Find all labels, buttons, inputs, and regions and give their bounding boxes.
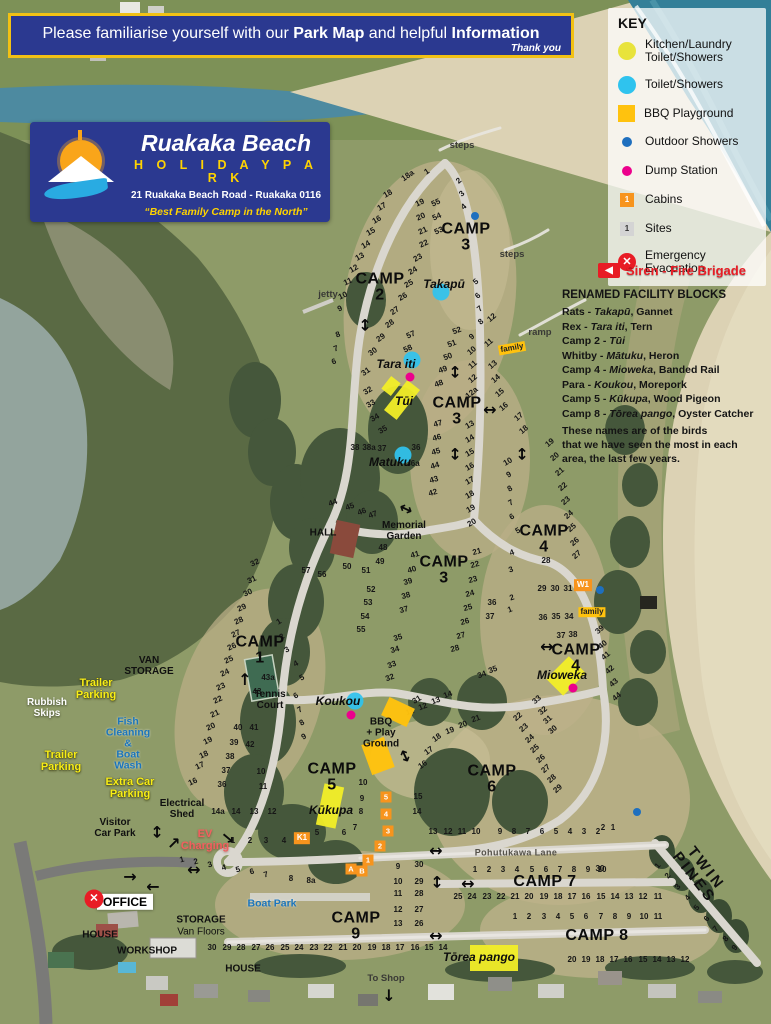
site-number: 37 (486, 613, 495, 621)
site-number: 35 (552, 613, 561, 621)
direction-arrow: ↔ (187, 862, 200, 878)
site-number: 6 (584, 913, 588, 921)
site-number: 36 (412, 444, 421, 452)
renamed-entry: Camp 8 - Tōrea pango, Oyster Catcher (562, 407, 770, 421)
site-number: 28 (384, 318, 396, 330)
site-number: 5 (235, 866, 241, 875)
site-number: 55 (357, 626, 366, 634)
cabin-marker: 5 (381, 792, 392, 803)
site-number: 28 (450, 644, 461, 654)
facility-label: Mioweka (537, 669, 587, 681)
site-number: 18 (554, 893, 563, 901)
cabin-marker: 2 (375, 841, 386, 852)
key-item-label: Kitchen/Laundry Toilet/Showers (645, 38, 732, 65)
key-item-label: Dump Station (645, 164, 718, 177)
site-number: 5 (298, 673, 306, 682)
site-number: 30 (242, 587, 253, 598)
site-number: 24 (219, 667, 230, 678)
site-number: 15 (494, 387, 506, 399)
site-number: 3 (674, 883, 683, 892)
site-number: 8 (506, 484, 514, 493)
site-number: 5 (472, 278, 481, 287)
site-number: 7 (712, 925, 721, 934)
renamed-entry: Camp 5 - Kūkupa, Wood Pigeon (562, 392, 770, 406)
map-label: Pohutukawa Lane (475, 849, 558, 858)
site-number: 25 (463, 603, 474, 613)
outdoor-shower-marker (596, 586, 604, 594)
key-item: Outdoor Showers (618, 133, 760, 151)
site-number: 23 (310, 944, 319, 952)
site-number: 32 (384, 673, 395, 684)
site-number: 7 (296, 705, 304, 714)
renamed-entry: Para - Koukou, Morepork (562, 378, 770, 392)
site-number: 7 (263, 871, 269, 880)
camp-label: CAMP 4 (519, 524, 568, 557)
map-label: OFFICE (97, 894, 153, 910)
map-label: jetty (318, 290, 338, 300)
site-number: 1 (423, 167, 431, 176)
site-number: 4 (292, 659, 300, 668)
site-number: 36 (218, 781, 227, 789)
facility-tag: W1 (574, 579, 592, 591)
site-number: 11 (342, 277, 353, 288)
site-number: 18 (382, 944, 391, 952)
site-number: 9 (360, 795, 364, 803)
site-number: 8 (298, 718, 306, 727)
site-number: 48 (433, 379, 444, 390)
map-label: Memorial Garden (382, 520, 426, 542)
site-number: 15 (425, 944, 434, 952)
site-number: 7 (333, 344, 340, 353)
site-number: 11 (259, 783, 267, 791)
site-number: 22 (470, 560, 481, 570)
site-number: 19 (444, 726, 455, 737)
direction-arrow: ↔ (461, 876, 474, 892)
site-number: 50 (343, 563, 352, 571)
site-number: 36 (539, 614, 548, 622)
site-number: 15 (464, 447, 476, 458)
site-number: 19 (582, 956, 591, 964)
map-label: BBQ + Play Ground (363, 717, 399, 750)
site-number: 21 (209, 708, 220, 719)
map-label: ramp (528, 328, 551, 338)
site-number: 8 (335, 330, 342, 339)
site-number: 9 (505, 470, 513, 479)
site-number: 31 (360, 366, 372, 378)
map-label: Boat Park (247, 898, 296, 909)
site-number: 14 (611, 893, 620, 901)
site-number: 32 (362, 385, 374, 396)
site-number: 15 (365, 226, 377, 237)
site-number: 4 (684, 894, 693, 903)
site-number: 28 (233, 615, 244, 626)
site-number: 30 (547, 724, 559, 736)
sun-mountain-river-icon (42, 134, 120, 210)
site-number: 7 (599, 913, 603, 921)
direction-arrow: ↔ (429, 875, 445, 888)
site-number: 19 (540, 893, 549, 901)
site-number: 23 (560, 495, 572, 507)
site-number: 39 (403, 577, 414, 587)
logo-card: Ruakaka Beach H O L I D A Y P A R K 21 R… (30, 122, 330, 222)
key-title: KEY (618, 16, 760, 30)
site-number: 6 (292, 691, 300, 700)
cabin-marker: 4 (381, 809, 392, 820)
site-number: 6 (703, 915, 712, 924)
site-number: 19 (465, 503, 477, 514)
site-square-icon: 1 (620, 222, 634, 236)
site-number: 20 (549, 451, 561, 463)
site-number: 47 (367, 510, 378, 521)
site-number: 38 (351, 444, 360, 452)
site-number: 39 (594, 624, 606, 636)
site-number: 16 (464, 461, 476, 472)
facility-label: Tara iti (377, 358, 416, 370)
site-number: 37 (378, 445, 387, 453)
direction-arrow: ↔ (397, 499, 416, 519)
direction-arrow: ← (146, 879, 159, 895)
site-number: 2 (596, 828, 600, 836)
site-number: 5 (315, 829, 319, 837)
camp-label: CAMP 3 (419, 555, 468, 588)
site-number: 28 (237, 944, 246, 952)
map-label: Fish Cleaning & Boat Wash (106, 716, 150, 771)
site-number: 7 (476, 305, 485, 314)
site-number: 43 (429, 475, 440, 485)
site-number: 26 (415, 920, 424, 928)
site-number: 15 (597, 893, 606, 901)
site-number: 3 (582, 828, 586, 836)
magenta-dot-icon (622, 166, 632, 176)
site-number: 11 (654, 913, 662, 921)
site-number: 37 (222, 767, 231, 775)
site-number: 32 (249, 557, 260, 568)
map-label: HALL (310, 528, 337, 539)
site-number: 41 (600, 650, 612, 662)
renamed-entry: Rex - Tara iti, Tern (562, 320, 770, 334)
site-number: 51 (362, 567, 371, 575)
site-number: 20 (457, 720, 468, 731)
dump-station-marker (347, 711, 356, 720)
site-number: 29 (236, 602, 247, 613)
site-number: 18a (400, 169, 416, 183)
key-item: Kitchen/Laundry Toilet/Showers (618, 38, 760, 65)
site-number: 33 (531, 694, 543, 706)
site-number: 27 (571, 549, 583, 561)
site-number: 14 (413, 808, 422, 816)
direction-arrow: ↔ (429, 843, 442, 859)
site-number: 17 (568, 893, 577, 901)
map-label: Van Floors (177, 927, 225, 938)
site-number: 27 (456, 631, 467, 641)
site-number: 49 (376, 558, 385, 566)
site-number: 4 (556, 913, 560, 921)
site-number: 30 (551, 585, 560, 593)
site-number: 8a (307, 877, 316, 885)
map-label: Visitor Car Park (94, 817, 135, 839)
site-number: 30 (208, 944, 217, 952)
site-number: 1 (513, 913, 517, 921)
site-number: 18 (596, 956, 605, 964)
site-number: 31 (246, 574, 257, 585)
site-number: 12 (486, 312, 498, 324)
direction-arrow: ↑ (238, 672, 251, 688)
renamed-title: RENAMED FACILITY BLOCKS (562, 288, 770, 302)
site-number: 40 (234, 724, 243, 732)
site-number: 10 (257, 768, 266, 776)
site-number: 54 (361, 613, 370, 621)
site-number: 25 (281, 944, 290, 952)
siren-icon: ◀ (598, 263, 620, 278)
site-number: 1 (507, 605, 514, 614)
site-number: 21 (417, 225, 428, 236)
map-label: HOUSE (225, 964, 261, 975)
site-number: 8 (359, 808, 363, 816)
site-number: 44 (430, 461, 441, 471)
site-number: 45 (344, 502, 355, 513)
map-label: Tennis Court (254, 689, 285, 711)
site-number: 9 (468, 333, 477, 342)
site-number: 11 (394, 890, 402, 898)
direction-arrow: ↔ (483, 402, 496, 418)
site-number: 17 (194, 760, 205, 771)
site-number: 14 (464, 433, 476, 444)
site-number: 21 (470, 714, 481, 725)
site-number: 23 (468, 575, 479, 585)
site-number: 22 (324, 944, 333, 952)
site-number: 40 (407, 565, 418, 575)
site-number: 20 (466, 517, 478, 528)
direction-arrow: ↔ (540, 639, 553, 655)
site-number: 4 (460, 203, 469, 212)
map-label: TWIN PINES (666, 836, 733, 910)
site-number: 23 (215, 681, 226, 692)
site-number: 16 (417, 759, 429, 771)
site-number: 24 (468, 893, 477, 901)
site-number: 3 (501, 866, 505, 874)
site-number: 27 (415, 906, 424, 914)
banner: Please familiarise yourself with our Par… (8, 13, 574, 58)
key-item: Dump Station (618, 162, 760, 180)
map-label: VAN STORAGE (124, 655, 173, 677)
site-number: 13 (430, 696, 441, 707)
site-number: 13 (250, 808, 259, 816)
site-number: 41 (250, 724, 259, 732)
site-number: 37 (557, 632, 566, 640)
site-number: 15 (639, 956, 648, 964)
site-number: 21 (472, 547, 483, 557)
site-number: 20 (568, 956, 577, 964)
site-number: 8 (512, 828, 516, 836)
family-site-tag: family (578, 607, 605, 617)
site-number: 2 (527, 913, 531, 921)
site-number: 22 (212, 694, 223, 705)
site-number: 8 (477, 318, 486, 327)
renamed-entry: Camp 4 - Mioweka, Banded Rail (562, 363, 770, 377)
site-number: 16 (498, 401, 510, 413)
site-number: 12 (681, 956, 690, 964)
site-number: 5 (570, 913, 574, 921)
site-number: 5 (554, 828, 558, 836)
site-number: 6 (342, 829, 346, 837)
site-number: 25 (454, 893, 463, 901)
site-number: 13 (487, 359, 499, 371)
direction-arrow: ↔ (149, 825, 165, 838)
map-label: steps (500, 250, 525, 260)
cyan-circle-icon (618, 76, 636, 94)
site-number: 9 (300, 732, 308, 741)
park-subtitle: H O L I D A Y P A R K (128, 159, 324, 184)
renamed-note: These names are of the birds that we hav… (562, 425, 770, 467)
site-number: 29 (375, 332, 387, 344)
site-number: 8 (289, 875, 293, 883)
site-number: 13 (394, 920, 403, 928)
siren-note: ◀ Siren - Fire Brigade (598, 263, 746, 278)
site-number: 34 (565, 613, 574, 621)
site-number: 33 (386, 660, 397, 671)
site-number: 30 (415, 861, 424, 869)
cabin-marker: 1 (363, 855, 374, 866)
facility-label: Takapū (423, 278, 465, 290)
site-number: 19 (368, 944, 377, 952)
site-number: 5 (693, 904, 702, 913)
cabin-marker: 3 (383, 826, 394, 837)
site-number: 18 (518, 424, 530, 436)
site-number: 25 (403, 278, 415, 289)
direction-arrow: ↔ (429, 928, 442, 944)
site-number: 17 (376, 201, 388, 212)
site-number: 10 (640, 913, 649, 921)
orange-square-icon (618, 105, 635, 122)
site-number: 34 (476, 670, 487, 681)
key-item: 1Cabins (618, 191, 760, 209)
site-number: 11 (654, 893, 662, 901)
map-label: Trailer Parking (76, 677, 116, 701)
site-number: 25 (223, 654, 234, 665)
site-number: 17 (396, 944, 405, 952)
park-map-poster: 18a1234181716151413121110987619552054215… (0, 0, 771, 1024)
site-number: 43a (261, 674, 274, 682)
outdoor-shower-marker (471, 212, 479, 220)
renamed-blocks-panel: RENAMED FACILITY BLOCKS Rats - Takapū, G… (562, 288, 770, 467)
site-number: 8 (613, 913, 617, 921)
site-number: 23 (518, 722, 530, 734)
site-number: 11 (467, 359, 479, 371)
site-number: 20 (415, 211, 426, 222)
site-number: 24 (465, 589, 476, 599)
key-item-label: Cabins (645, 193, 682, 206)
site-number: 56 (318, 571, 327, 579)
direction-arrow: → (123, 869, 136, 885)
map-label: HOUSE (82, 930, 118, 941)
site-number: 29 (415, 878, 424, 886)
camp-label: CAMP 5 (307, 762, 356, 795)
site-number: 28 (542, 557, 551, 565)
direction-arrow: ↓ (382, 988, 395, 1004)
key-item-label: Toilet/Showers (645, 78, 723, 91)
site-number: 23 (483, 893, 492, 901)
site-number: 9 (586, 866, 590, 874)
site-number: 15 (414, 793, 423, 801)
site-number: 2 (248, 837, 252, 845)
site-number: 10 (598, 866, 607, 874)
site-number: 27 (389, 305, 401, 317)
site-number: 4 (282, 837, 286, 845)
site-number: 22 (557, 481, 569, 493)
site-number: 10 (472, 828, 481, 836)
site-number: 16 (411, 944, 420, 952)
siren-label: Siren - Fire Brigade (626, 264, 746, 277)
facility-label: Matuku (369, 456, 411, 468)
site-number: 35 (393, 633, 404, 643)
site-number: 42 (246, 741, 255, 749)
map-key: KEY Kitchen/Laundry Toilet/ShowersToilet… (608, 8, 766, 286)
direction-arrow: ↔ (447, 365, 463, 378)
site-number: 4 (221, 864, 227, 873)
map-label: STORAGE (176, 915, 225, 926)
site-number: 2 (601, 824, 605, 832)
site-number: 17 (423, 745, 435, 757)
site-number: 14 (653, 956, 662, 964)
site-number: 46 (356, 507, 367, 518)
map-label: Extra Car Parking (106, 776, 155, 800)
site-number: 19 (202, 735, 213, 746)
direction-arrow: ↔ (447, 447, 463, 460)
site-number: 35 (377, 424, 389, 435)
site-number: 55 (430, 197, 441, 208)
site-number: 13 (625, 893, 634, 901)
map-label: Trailer Parking (41, 749, 81, 773)
site-number: 44 (327, 498, 338, 509)
map-label: steps (450, 141, 475, 151)
site-number: 6 (508, 512, 516, 521)
site-number: 50 (442, 352, 453, 363)
yellow-circle-icon (618, 42, 636, 60)
key-item-list: Kitchen/Laundry Toilet/ShowersToilet/Sho… (618, 38, 760, 276)
site-number: 9 (336, 304, 343, 313)
site-number: 16 (187, 776, 198, 787)
site-number: 13 (354, 251, 366, 262)
site-number: 6 (474, 292, 483, 301)
site-number: 12 (444, 828, 453, 836)
map-label: WORKSHOP (117, 946, 177, 957)
site-number: 10 (359, 779, 368, 787)
site-number: 10 (394, 878, 403, 886)
site-number: 3 (264, 837, 268, 845)
facility-label: Koukou (316, 695, 361, 707)
site-number: 9 (627, 913, 631, 921)
site-number: 12 (268, 808, 277, 816)
site-number: 18 (464, 489, 476, 500)
site-number: 37 (399, 605, 410, 615)
renamed-entry-list: Rats - Takapū, GannetRex - Tara iti, Ter… (562, 305, 770, 421)
site-number: 12 (639, 893, 648, 901)
key-item: Toilet/Showers (618, 76, 760, 94)
site-number: 18 (431, 732, 443, 744)
key-item-label: BBQ Playground (644, 107, 733, 120)
site-number: 14a (211, 808, 224, 816)
site-number: 57 (302, 567, 311, 575)
site-number: 24 (295, 944, 304, 952)
site-number: 46 (432, 433, 443, 443)
camp-label: CAMP 9 (331, 911, 380, 944)
site-number: 12 (394, 906, 403, 914)
dump-station-marker (406, 373, 415, 382)
facility-tag: K1 (294, 832, 310, 844)
site-number: 24 (563, 509, 575, 521)
site-number: 9 (498, 828, 502, 836)
site-number: 26 (569, 536, 581, 548)
